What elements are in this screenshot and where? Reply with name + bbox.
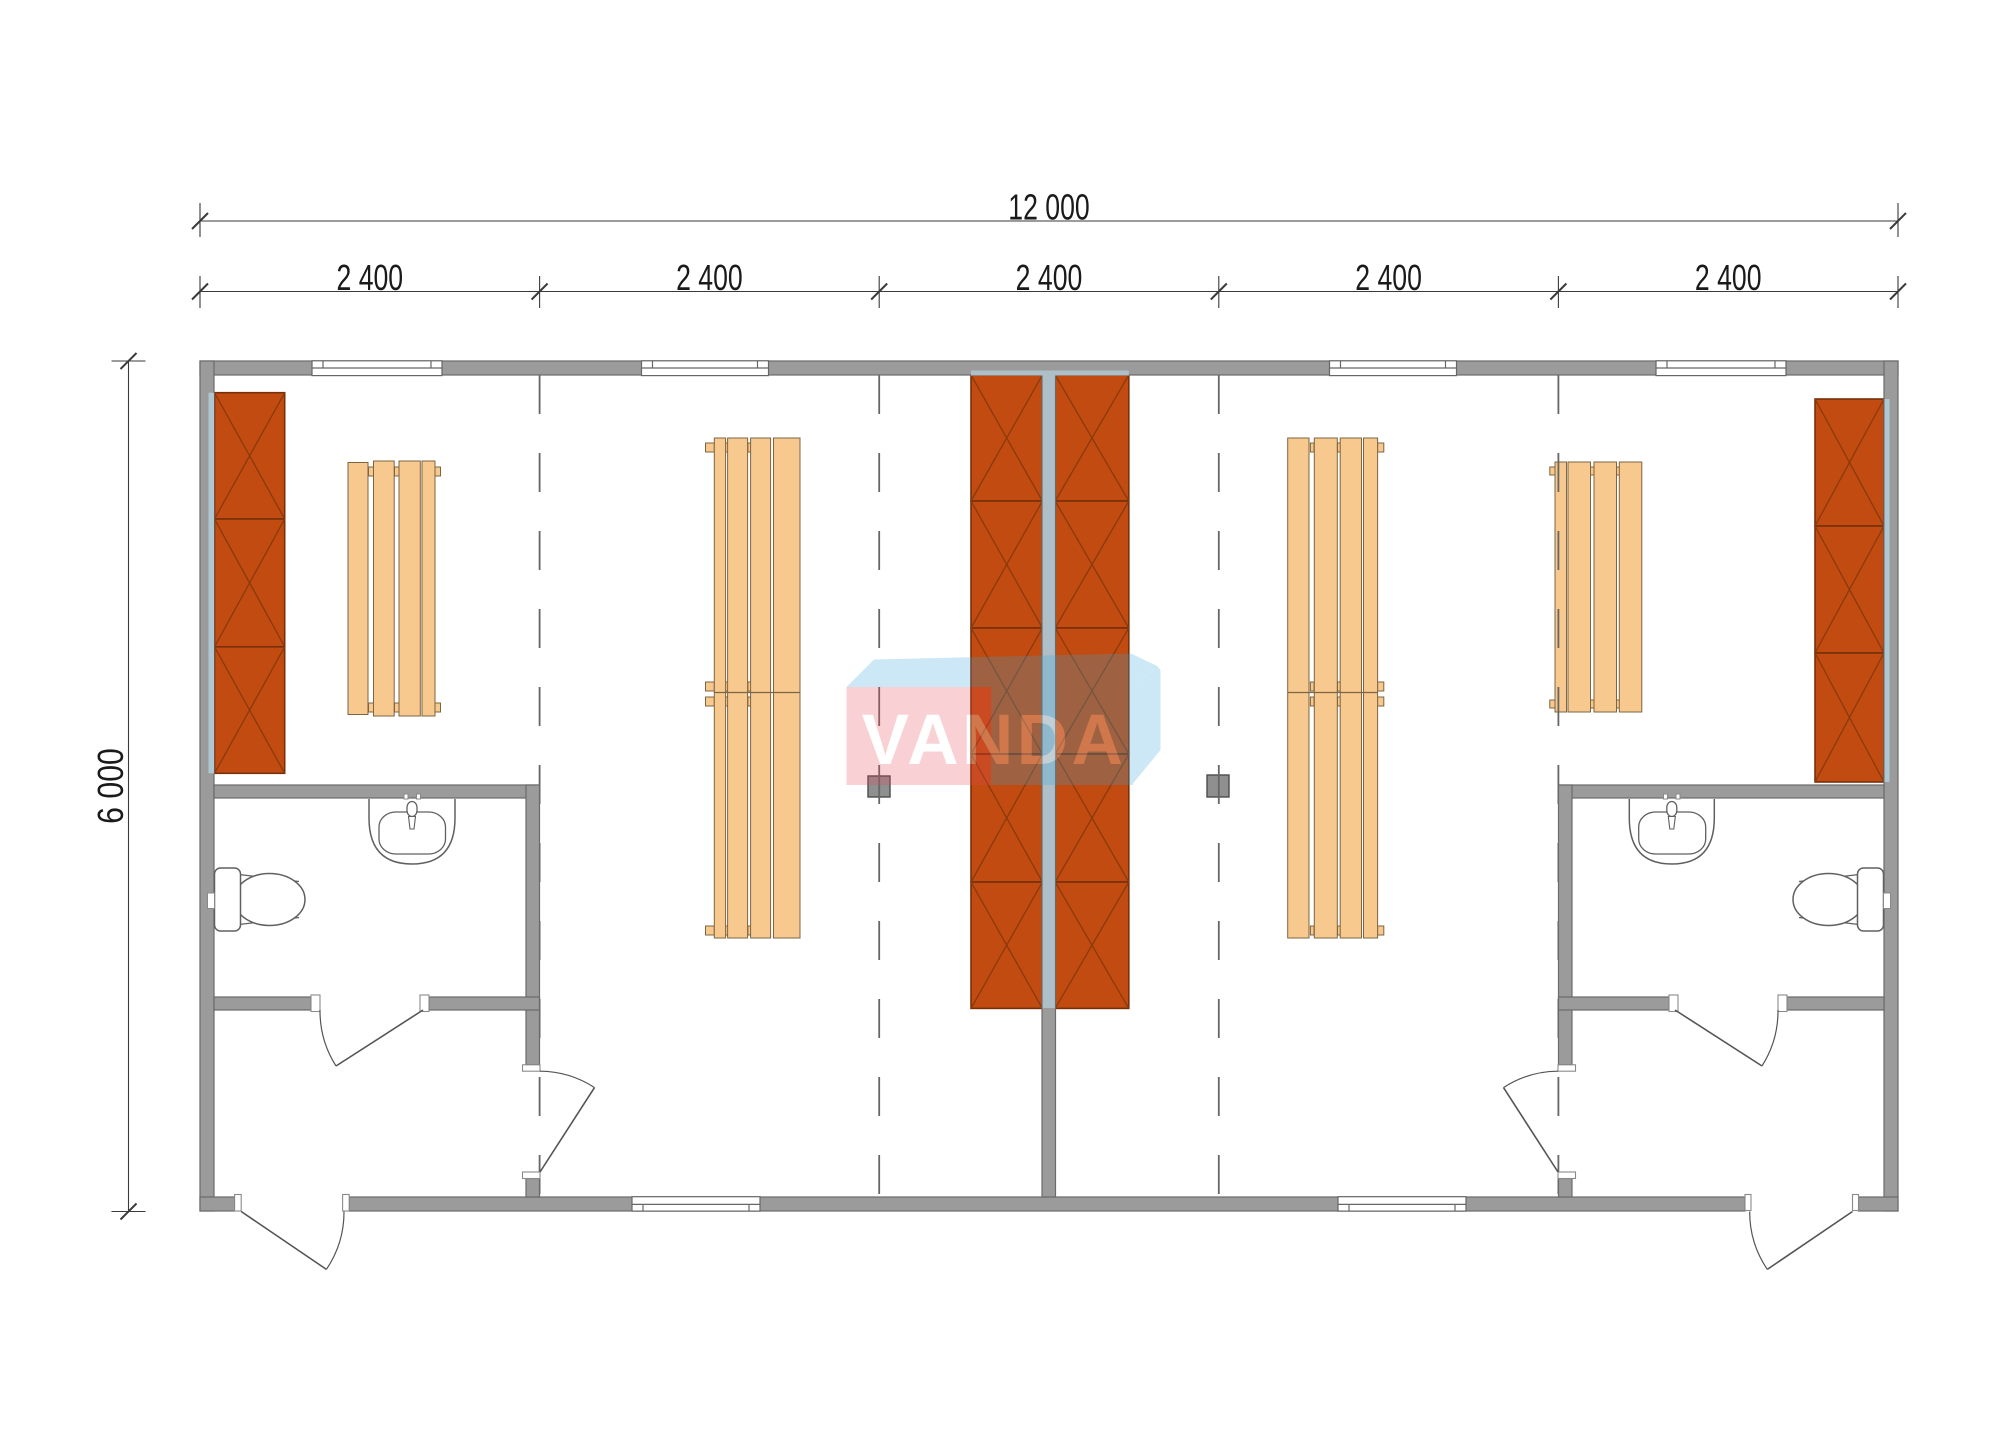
svg-text:12 000: 12 000 xyxy=(1008,187,1089,228)
svg-text:2 400: 2 400 xyxy=(1355,257,1422,298)
svg-text:2 400: 2 400 xyxy=(336,257,403,298)
svg-text:2 400: 2 400 xyxy=(1016,257,1083,298)
svg-text:2 400: 2 400 xyxy=(1695,257,1762,298)
svg-text:6 000: 6 000 xyxy=(92,748,132,824)
svg-text:2 400: 2 400 xyxy=(676,257,743,298)
svg-text:VANDA: VANDA xyxy=(862,701,1127,780)
